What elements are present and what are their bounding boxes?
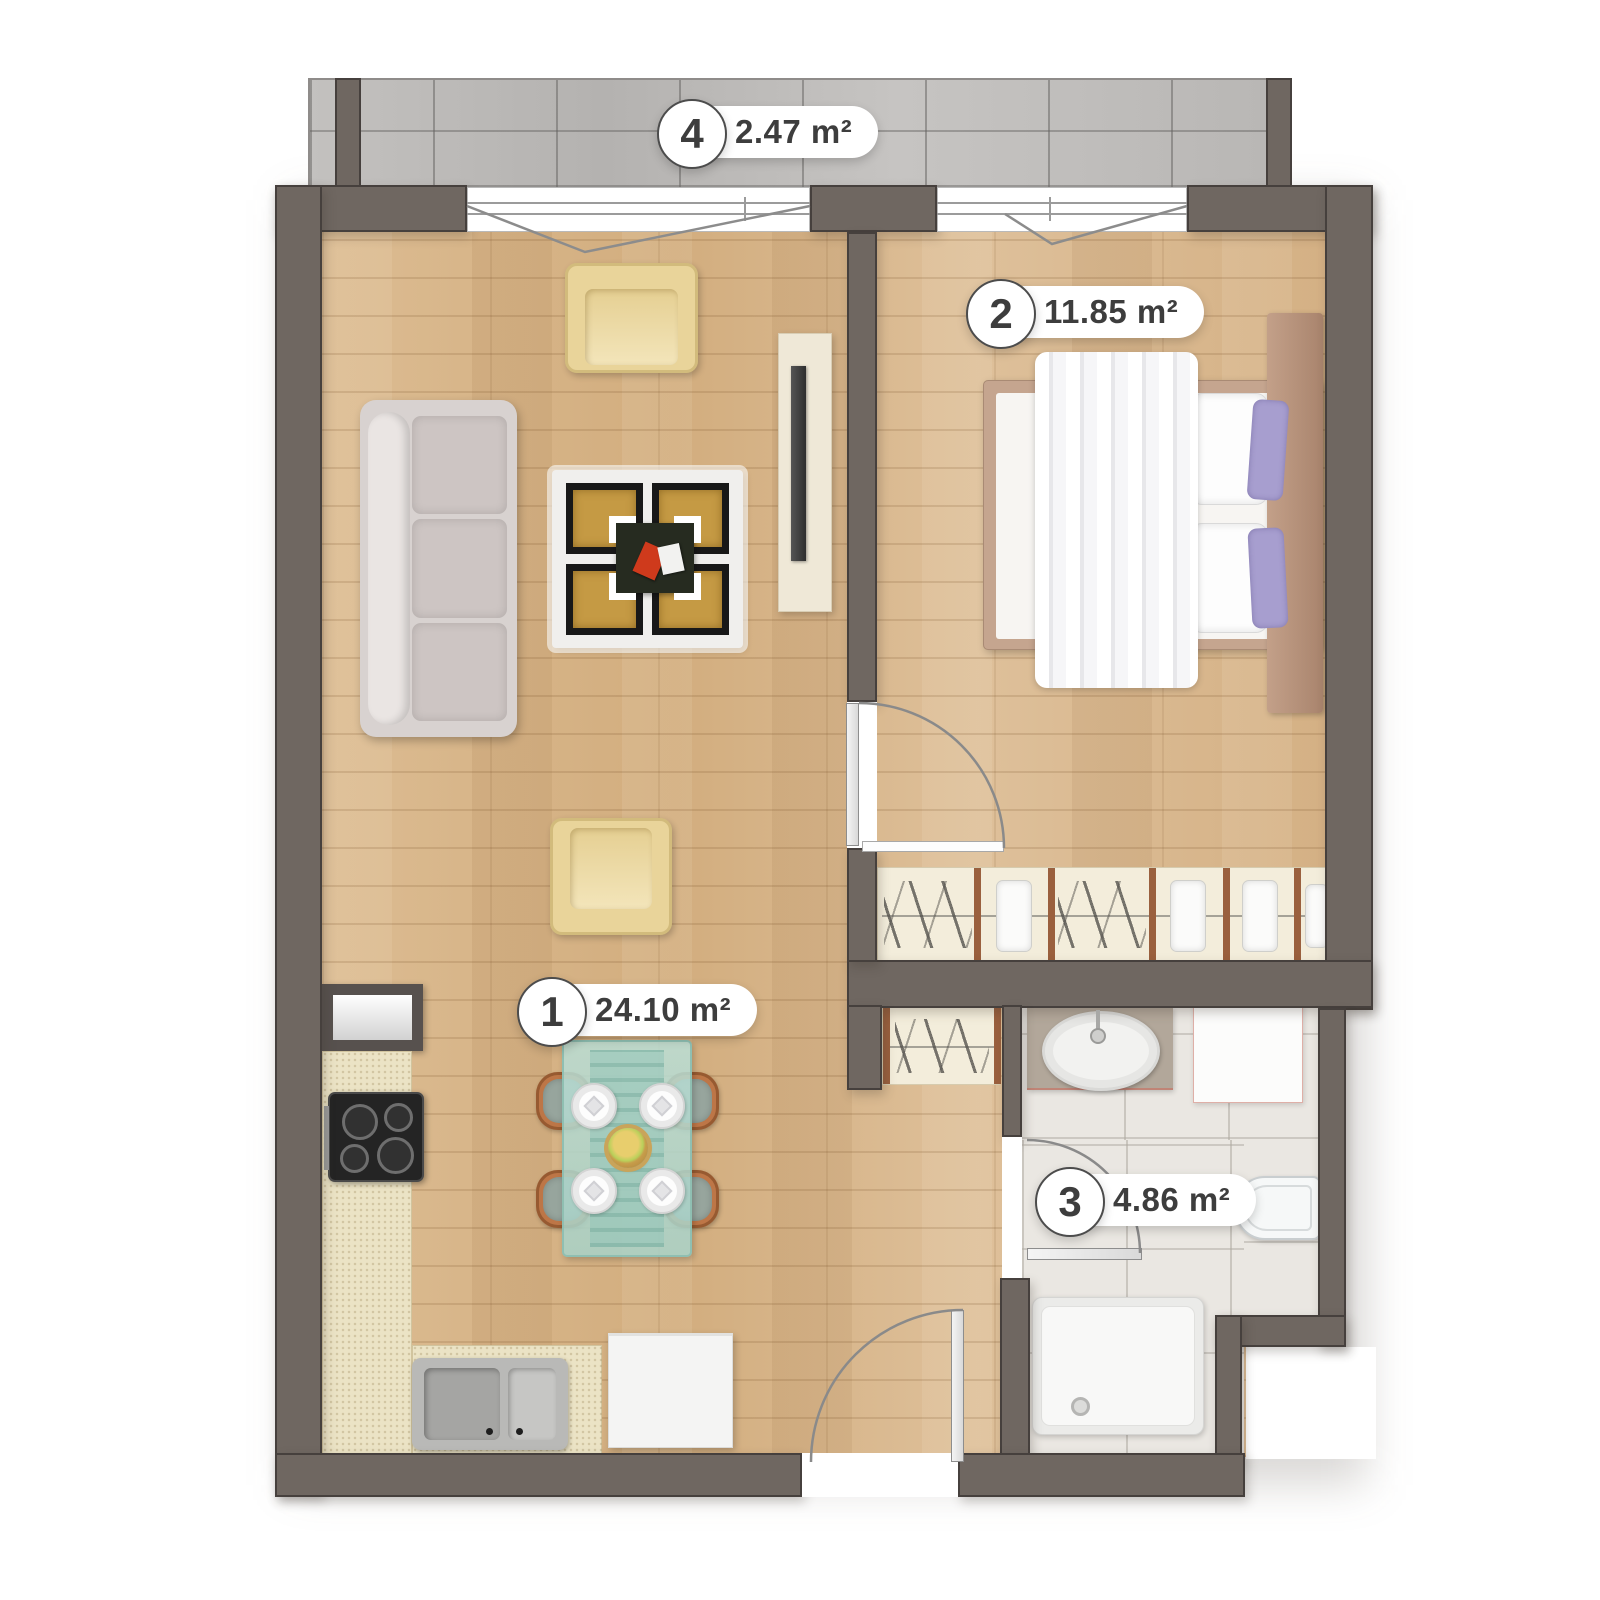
accent-pillow	[1247, 399, 1290, 501]
wall-under-wardrobe	[847, 960, 1373, 1008]
wall-bottom-left	[275, 1453, 802, 1497]
plate	[571, 1168, 617, 1214]
tv-screen	[791, 366, 806, 561]
bed-duvet	[1035, 352, 1198, 688]
coffee-table	[616, 523, 694, 593]
wall-bath-left-upper	[1002, 1005, 1022, 1137]
sofa	[360, 400, 517, 737]
oven-handle	[324, 1106, 329, 1170]
wall-bath-step	[1215, 1315, 1242, 1460]
room-number-text: 1	[540, 988, 563, 1036]
kitchen-sink	[412, 1358, 568, 1450]
room-area-text: 11.85 m²	[1044, 293, 1178, 331]
room-area-text: 24.10 m²	[595, 991, 731, 1029]
bedroom-door-threshold	[862, 841, 1004, 852]
accent-pillow	[1247, 527, 1288, 629]
sofa-backrest	[368, 412, 410, 725]
bathroom-door-leaf	[1027, 1248, 1142, 1260]
cooktop	[328, 1092, 424, 1182]
table-corner	[674, 573, 701, 600]
wall-bedroom-divider-lower	[847, 848, 877, 962]
armchair-seat	[570, 828, 652, 909]
folded-clothes	[996, 880, 1032, 952]
room-label-bedroom: 11.85 m² 2	[966, 279, 1032, 345]
room-area-text: 2.47 m²	[735, 113, 852, 151]
room-number-text: 2	[989, 290, 1012, 338]
bedroom-door-leaf	[846, 703, 859, 846]
armchair-top	[565, 263, 698, 373]
kitchen-wall-cabinet	[322, 984, 423, 1051]
room-label-balcony: 2.47 m² 4	[657, 99, 723, 165]
bathroom-door-opening	[1002, 1137, 1022, 1278]
sink-basin-right	[508, 1368, 556, 1440]
magazine-white	[657, 543, 684, 575]
bathroom-sink	[1042, 1011, 1160, 1091]
armchair-seat	[585, 289, 678, 365]
balcony-pillar-left	[335, 78, 361, 187]
entry-door-leaf	[951, 1310, 964, 1462]
room-number-badge: 2	[966, 279, 1036, 349]
washing-machine	[1193, 1003, 1303, 1103]
room-label-living: 24.10 m² 1	[517, 977, 583, 1043]
plate	[639, 1083, 685, 1129]
table-corner	[609, 516, 636, 543]
tv-stand	[778, 333, 832, 612]
room-number-badge: 1	[517, 977, 587, 1047]
wall-left	[275, 185, 322, 1495]
room-number-text: 3	[1058, 1178, 1081, 1226]
bed-headboard	[1267, 313, 1323, 713]
sofa-cushions	[412, 416, 507, 721]
hanging-clothes	[895, 1019, 989, 1074]
hall-closet	[882, 1007, 1000, 1085]
wall-bath-right	[1318, 1008, 1346, 1347]
entry-door-opening	[802, 1453, 958, 1497]
wall-bottom-right	[958, 1453, 1245, 1497]
table-corner	[609, 573, 636, 600]
fruit-bowl	[608, 1128, 648, 1168]
hanging-clothes	[1058, 881, 1146, 948]
drain-dot	[516, 1428, 523, 1435]
bedroom-wardrobe	[877, 867, 1330, 962]
room-number-badge: 3	[1035, 1167, 1105, 1237]
room-number-badge: 4	[657, 99, 727, 169]
hanging-clothes	[884, 881, 972, 948]
outside-area	[1246, 1347, 1376, 1459]
armchair-bottom	[550, 818, 672, 935]
folded-clothes	[1170, 880, 1206, 952]
folded-clothes	[1242, 880, 1278, 952]
room-label-bathroom: 4.86 m² 3	[1035, 1167, 1101, 1233]
balcony-pillar-right	[1266, 78, 1292, 187]
wall-right	[1325, 185, 1373, 1010]
bedroom-window	[937, 187, 1187, 232]
area-rug	[552, 470, 743, 648]
wall-bedroom-divider-upper	[847, 232, 877, 702]
plate	[571, 1083, 617, 1129]
wall-top-pier	[810, 185, 937, 232]
wall-bath-left-lower	[1000, 1278, 1030, 1458]
living-room-window	[467, 187, 810, 232]
plate	[639, 1168, 685, 1214]
room-number-text: 4	[680, 110, 703, 158]
shower-tray	[1032, 1297, 1204, 1435]
table-corner	[674, 516, 701, 543]
bathroom-vanity	[1027, 1007, 1173, 1090]
dishwasher	[608, 1333, 733, 1448]
room-area-text: 4.86 m²	[1113, 1181, 1230, 1219]
drain-dot	[486, 1428, 493, 1435]
wall-hall-left	[847, 1005, 882, 1090]
